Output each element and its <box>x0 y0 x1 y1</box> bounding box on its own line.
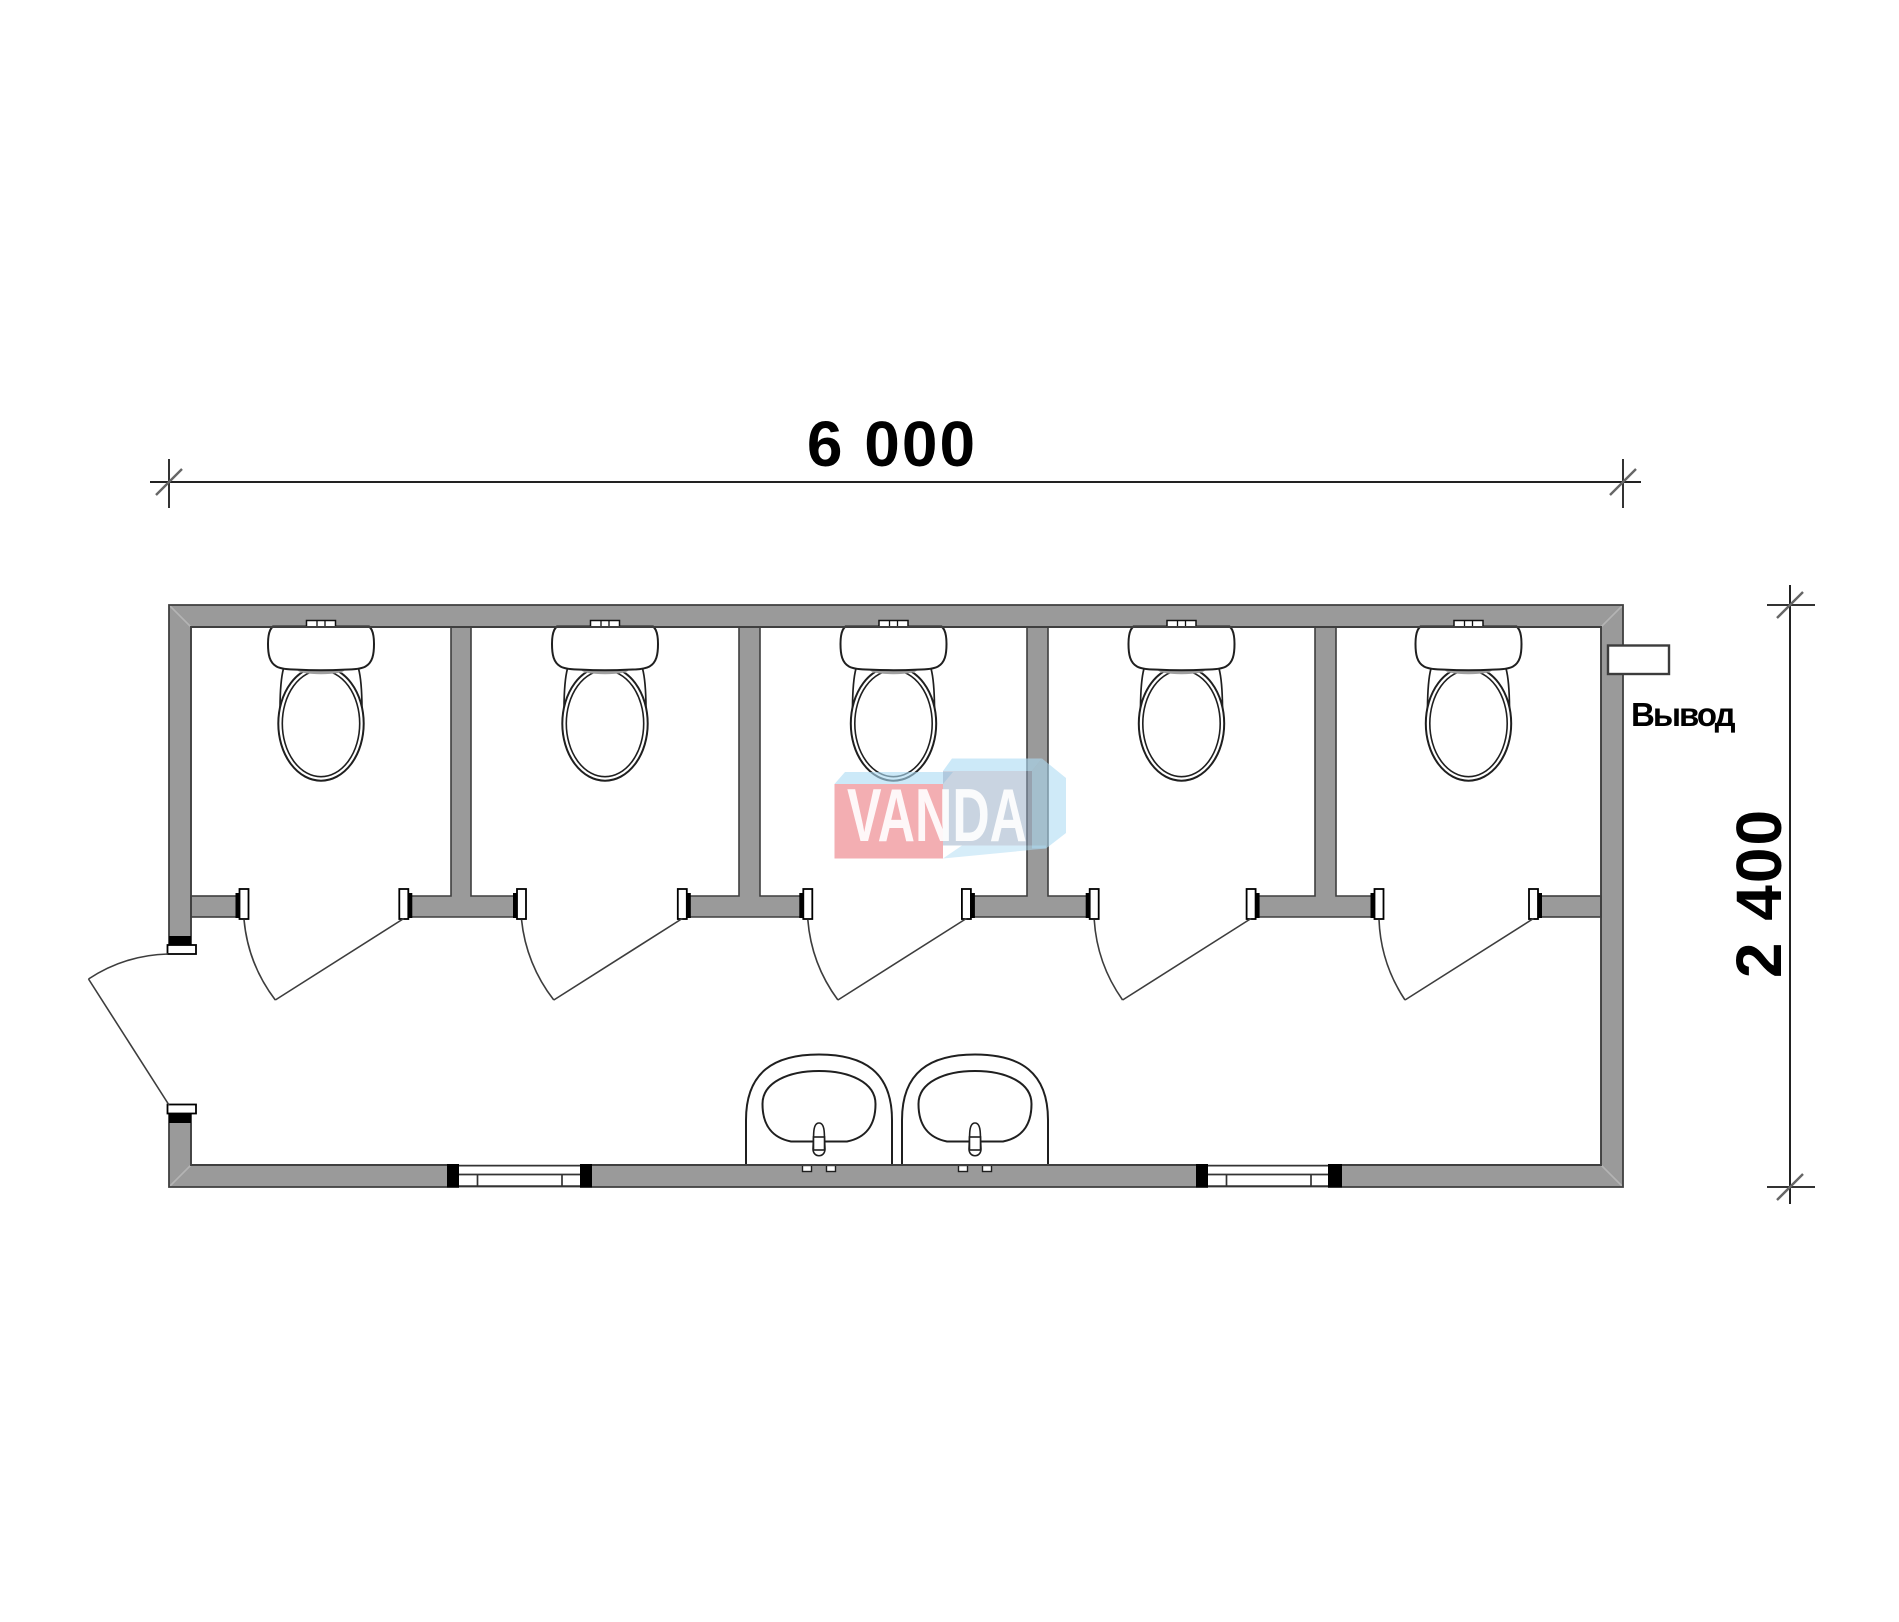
svg-text:VANDA: VANDA <box>847 773 1027 857</box>
svg-text:2 400: 2 400 <box>1723 808 1795 978</box>
svg-text:6 000: 6 000 <box>807 408 977 480</box>
svg-text:Вывод: Вывод <box>1631 696 1736 733</box>
